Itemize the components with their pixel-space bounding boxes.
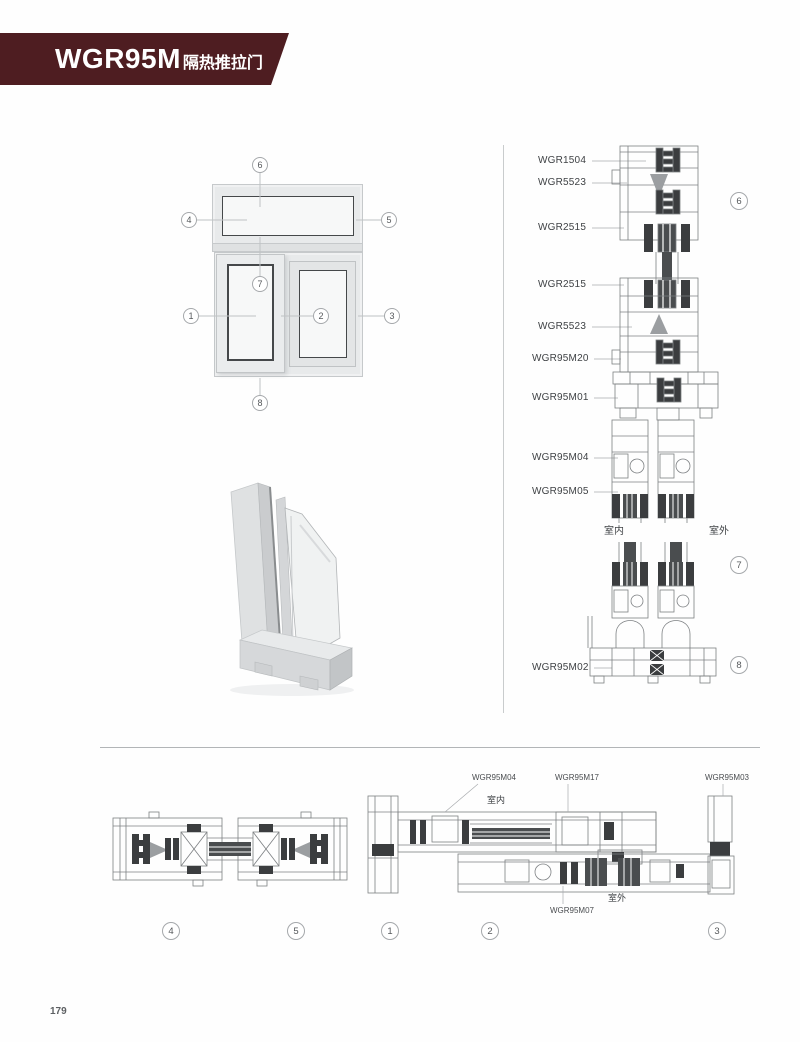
page-number: 179 bbox=[50, 1006, 67, 1017]
callout-3: 3 bbox=[384, 308, 400, 324]
part-label-wgr5523: WGR5523 bbox=[538, 177, 586, 189]
callout-2: 2 bbox=[313, 308, 329, 324]
part-label-wgr5523-2: WGR5523 bbox=[538, 321, 586, 333]
part-label-wgr95m04-h: WGR95M04 bbox=[464, 773, 524, 783]
elevation-leader-lines bbox=[197, 173, 384, 395]
callout-5: 5 bbox=[381, 212, 397, 228]
outdoor-label-h: 室外 bbox=[599, 892, 635, 904]
callout-6: 6 bbox=[252, 157, 268, 173]
section-callout-7: 7 bbox=[730, 556, 748, 574]
model-code: WGR95M bbox=[55, 43, 181, 74]
outdoor-label: 室外 bbox=[701, 526, 737, 538]
part-label-wgr1504: WGR1504 bbox=[538, 155, 586, 167]
callout-4: 4 bbox=[181, 212, 197, 228]
section-callout-3: 3 bbox=[708, 922, 726, 940]
indoor-label: 室内 bbox=[596, 526, 632, 538]
part-label-wgr95m01: WGR95M01 bbox=[532, 392, 589, 404]
vertical-section-drawing bbox=[588, 146, 718, 683]
model-subtitle: 隔热推拉门 bbox=[183, 55, 263, 72]
callout-8: 8 bbox=[252, 395, 268, 411]
section-callout-8: 8 bbox=[730, 656, 748, 674]
section-callout-6: 6 bbox=[730, 192, 748, 210]
section-callout-4: 4 bbox=[162, 922, 180, 940]
horizontal-section-drawing bbox=[113, 784, 734, 904]
callout-7: 7 bbox=[252, 276, 268, 292]
part-label-wgr95m05: WGR95M05 bbox=[532, 486, 589, 498]
page-title: WGR95M隔热推拉门 bbox=[55, 33, 263, 85]
profile-3d-render bbox=[230, 483, 354, 696]
part-label-wgr95m20: WGR95M20 bbox=[532, 353, 589, 365]
part-label-wgr2515-2: WGR2515 bbox=[538, 279, 586, 291]
part-label-wgr2515: WGR2515 bbox=[538, 222, 586, 234]
part-label-wgr95m07: WGR95M07 bbox=[542, 906, 602, 916]
part-label-wgr95m04: WGR95M04 bbox=[532, 452, 589, 464]
section-callout-1: 1 bbox=[381, 922, 399, 940]
part-label-wgr95m03: WGR95M03 bbox=[697, 773, 757, 783]
line-art-overlay bbox=[0, 0, 800, 1042]
part-label-wgr95m02: WGR95M02 bbox=[532, 662, 589, 674]
section-callout-2: 2 bbox=[481, 922, 499, 940]
part-label-wgr95m17: WGR95M17 bbox=[547, 773, 607, 783]
section-callout-5: 5 bbox=[287, 922, 305, 940]
callout-1: 1 bbox=[183, 308, 199, 324]
catalog-page: WGR95M隔热推拉门 bbox=[0, 0, 800, 1042]
indoor-label-h: 室内 bbox=[478, 794, 514, 806]
